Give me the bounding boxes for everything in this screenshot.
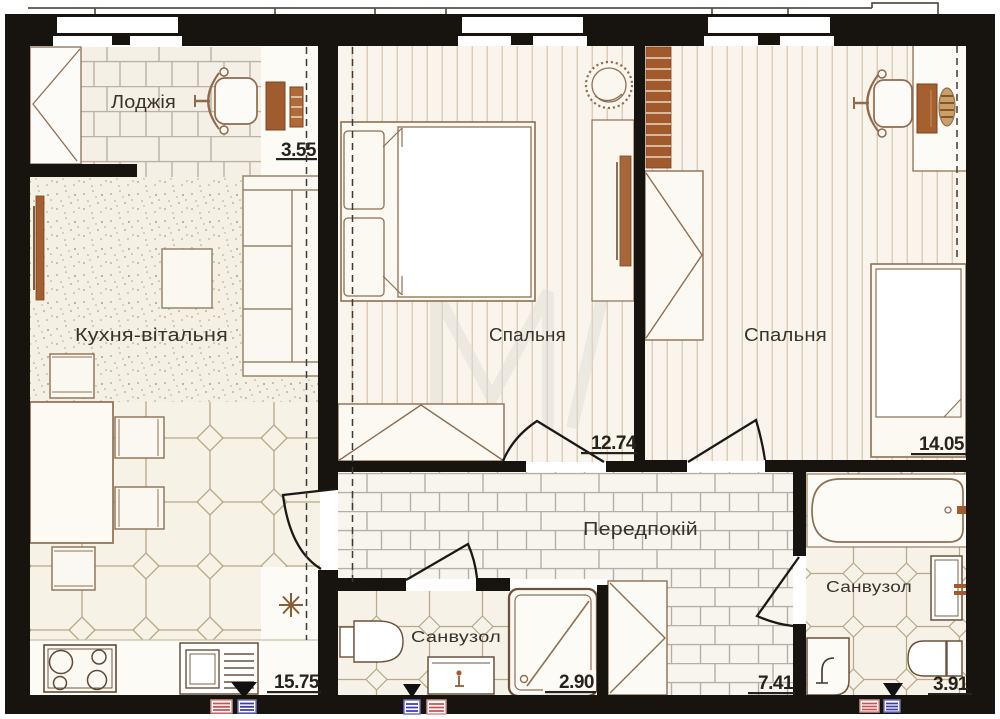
- svg-text:Санвузол: Санвузол: [826, 579, 912, 596]
- svg-text:Спальня: Спальня: [489, 325, 566, 345]
- svg-text:Санвузол: Санвузол: [411, 629, 501, 646]
- svg-text:3.91: 3.91: [933, 674, 969, 695]
- svg-text:Спальня: Спальня: [744, 325, 827, 345]
- svg-text:Лоджія: Лоджія: [111, 92, 176, 112]
- svg-text:Кухня-вітальня: Кухня-вітальня: [75, 325, 228, 345]
- svg-text:14.05: 14.05: [919, 434, 965, 455]
- svg-text:12.74: 12.74: [591, 433, 637, 454]
- svg-text:7.41: 7.41: [758, 673, 794, 694]
- svg-text:Передпокій: Передпокій: [583, 519, 698, 539]
- svg-text:15.75: 15.75: [274, 672, 320, 693]
- svg-text:2.90: 2.90: [559, 672, 594, 693]
- svg-text:3.55: 3.55: [281, 140, 317, 161]
